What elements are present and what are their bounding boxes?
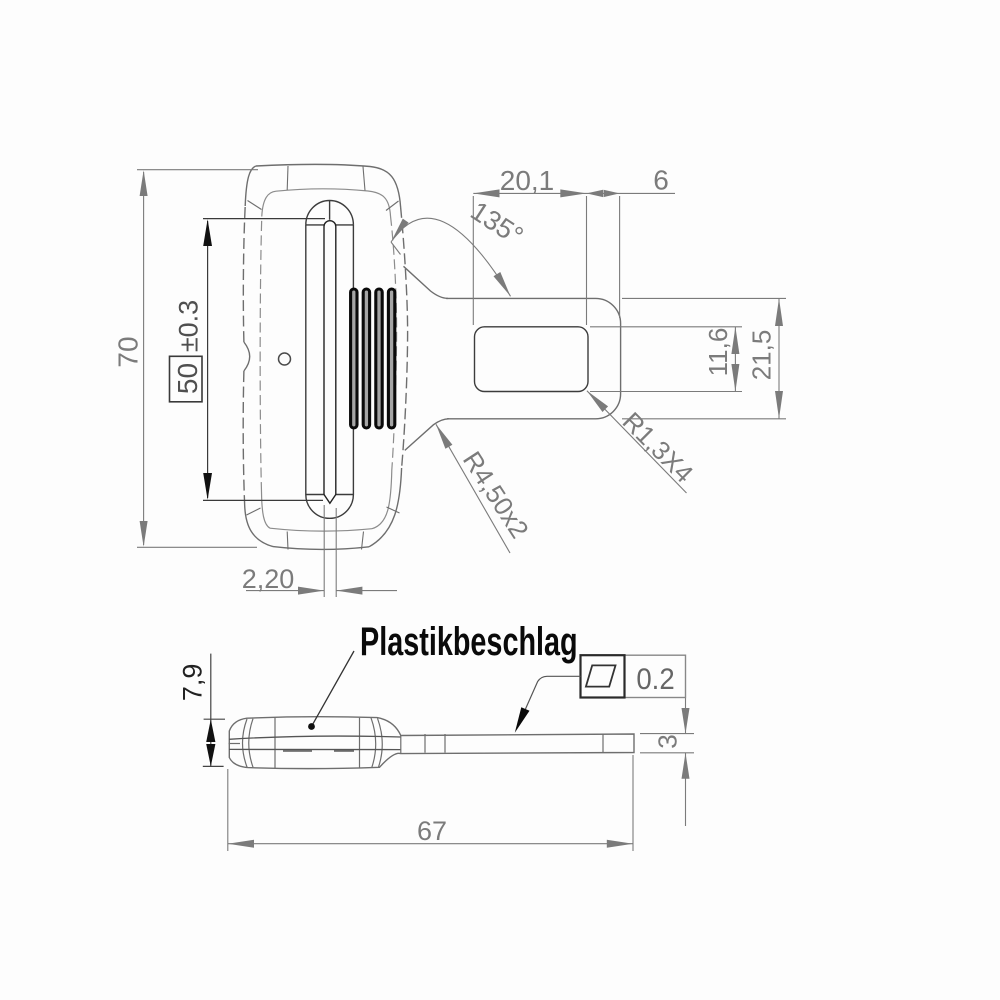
svg-text:20,1: 20,1 [500,165,555,196]
svg-text:3: 3 [653,734,683,748]
svg-text:±0.3: ±0.3 [174,300,204,352]
svg-text:Plastikbeschlag: Plastikbeschlag [360,619,578,664]
svg-text:50: 50 [172,363,203,394]
svg-text:135°: 135° [465,196,528,252]
svg-text:70: 70 [113,336,144,367]
svg-text:21,5: 21,5 [747,330,777,381]
svg-text:0.2: 0.2 [636,663,674,696]
svg-text:67: 67 [417,816,447,846]
svg-text:6: 6 [653,165,669,196]
svg-text:2,20: 2,20 [242,564,295,594]
svg-text:7,9: 7,9 [178,664,208,702]
svg-text:11,6: 11,6 [703,328,733,377]
